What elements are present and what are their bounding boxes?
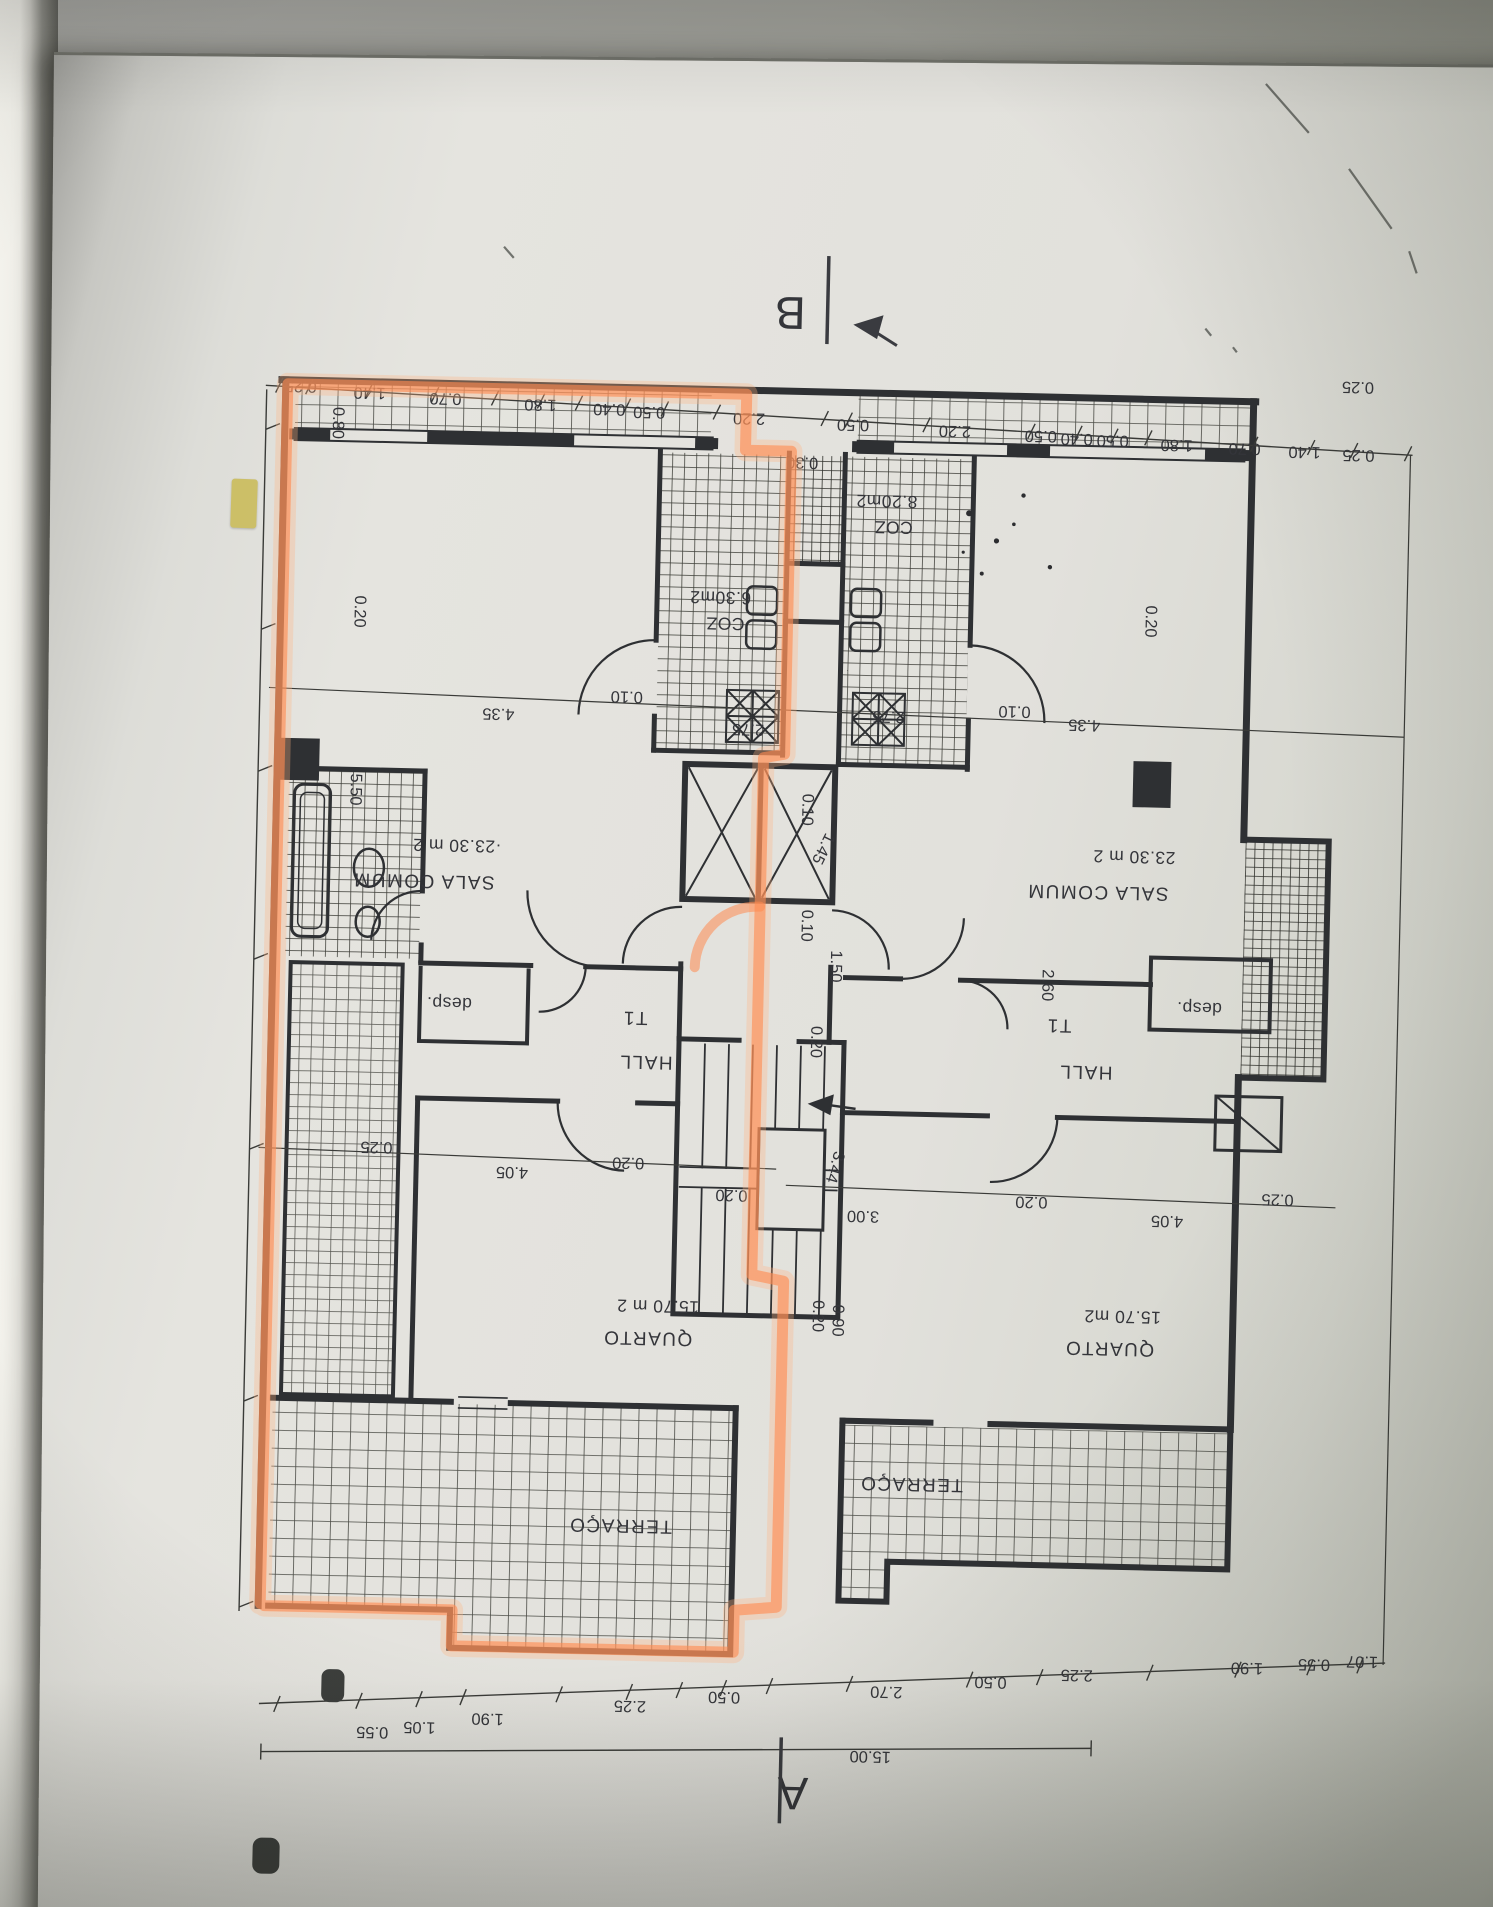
dim-label: 0.25 [1261, 1190, 1294, 1209]
room-area-coz-left: 6.30m2 [690, 587, 752, 608]
dim-label: 0.10 [797, 910, 816, 943]
dim-label: 0.20 [808, 1300, 827, 1333]
unit-type-left: T1 [622, 1007, 648, 1029]
tiled-areas [267, 382, 1336, 1667]
dim-label: 0.50 [1096, 431, 1129, 450]
room-area-sala-right: 23.30 m 2 [1093, 846, 1176, 868]
dim-label: 2.70 [870, 1682, 903, 1701]
dim-label: 0.20 [1141, 605, 1160, 638]
dim-label: 0.25 [1342, 446, 1375, 465]
dim-label: 5.50 [346, 773, 365, 806]
dim-label: 0.10 [798, 794, 817, 827]
pencil-marks [502, 67, 1421, 357]
room-label-terraco-right: TERRAÇO [859, 1472, 963, 1495]
room-label-coz-right: COZ [874, 517, 913, 538]
dim-label: 1.90 [1231, 1659, 1264, 1678]
room-label-sala-left: SALA COMUM [353, 868, 495, 892]
dim-label: 2.25 [1060, 1666, 1093, 1685]
binder-holes [252, 1667, 345, 1875]
dim-label: 0.70 [1228, 439, 1261, 458]
dim-label: 1.80 [1160, 436, 1193, 455]
dim-label: 0.20 [612, 1153, 645, 1172]
dim-label: 1.40 [1288, 443, 1321, 462]
room-label-quarto-right: QUARTO [1064, 1337, 1154, 1360]
dim-label: 0.90 [828, 1304, 847, 1337]
room-label-hall-right: HALL [1059, 1060, 1113, 1082]
photo-of-floorplan-page: 0.25 1.40 0.70 1.80 0.40 0.50 2.20 0.50 … [0, 0, 1493, 1907]
dim-label: 0.40 [1060, 429, 1093, 448]
dim-label: 0.10 [998, 702, 1031, 721]
dim-label: 4.05 [1151, 1212, 1184, 1231]
dim-label: 2.75 [872, 707, 905, 726]
dim-label: 0.20 [1015, 1193, 1048, 1212]
room-label-quarto-left: QUARTO [602, 1326, 692, 1349]
room-label-coz-left: COZ [706, 613, 745, 634]
dim-label: 0.50 [1025, 427, 1058, 446]
dim-label: 0.25 [360, 1138, 393, 1157]
unit-type-right: T1 [1046, 1014, 1072, 1036]
dim-label: 0.50 [708, 1688, 741, 1707]
dim-label: 4.35 [482, 704, 515, 723]
room-label-desp-right: desp. [1176, 998, 1222, 1019]
room-label-sala-right: SALA COMUM [1027, 880, 1169, 904]
room-area-quarto-right: 15.70 m2 [1084, 1306, 1161, 1328]
dim-label: 1.50 [826, 950, 845, 983]
room-area-sala-left: ·23.30 m 2 [413, 835, 502, 857]
dim-label: 0.40 [593, 400, 626, 419]
dim-label: 2.20 [939, 422, 972, 441]
dim-label: 1.90 [471, 1709, 504, 1728]
dim-label: 1.07 [1346, 1652, 1379, 1671]
dim-label: 4.35 [1068, 716, 1101, 735]
dim-label: 2.75 [732, 720, 765, 739]
dim-label: 1.05 [403, 1718, 436, 1737]
dim-label: 4.05 [496, 1163, 529, 1182]
dim-label: 0.20 [350, 595, 369, 628]
dim-label: 2.60 [1038, 969, 1057, 1002]
dim-label: 0.50 [837, 415, 870, 434]
section-marker-b: B [774, 287, 806, 340]
dim-label: 0.50 [633, 403, 666, 422]
dim-label-total: 15.00 [849, 1747, 891, 1766]
floor-plan-drawing: 0.25 1.40 0.70 1.80 0.40 0.50 2.20 0.50 … [0, 0, 1493, 1907]
room-label-desp-left: desp. [426, 993, 472, 1014]
dim-label: 3.00 [847, 1207, 880, 1226]
room-label-hall-left: HALL [619, 1051, 673, 1073]
dim-label: 0.80 [329, 407, 348, 440]
room-area-quarto-left: 15.70 m 2 [616, 1296, 699, 1318]
dim-label: 2.25 [614, 1697, 647, 1716]
dim-label: 0.20 [807, 1026, 826, 1059]
dim-label: 0.10 [611, 687, 644, 706]
room-area-coz-right: 8.20m2 [856, 491, 918, 512]
dim-label: 0.50 [974, 1673, 1007, 1692]
room-label-terraco-left: TERRAÇO [568, 1513, 672, 1536]
dim-label: 0.25 [1342, 378, 1375, 397]
dim-label: 0.55 [356, 1723, 389, 1742]
dim-label: 0.55 [1298, 1655, 1331, 1674]
